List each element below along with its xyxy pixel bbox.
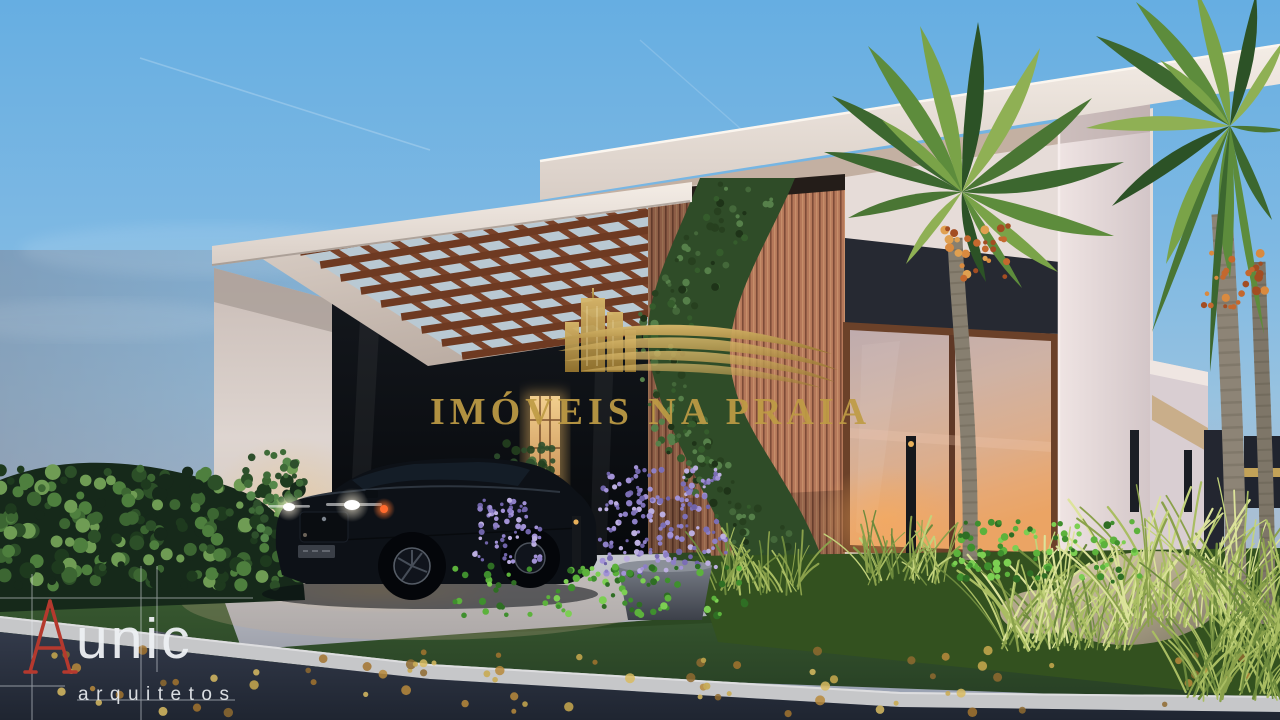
architectural-render bbox=[0, 0, 1280, 720]
badge bbox=[322, 517, 326, 521]
fog-light bbox=[303, 533, 307, 537]
drl-lamp bbox=[380, 505, 388, 513]
headlight bbox=[283, 503, 295, 511]
bollard-lamp bbox=[908, 441, 914, 447]
headlight bbox=[344, 500, 360, 510]
bollard-lamp bbox=[573, 519, 578, 524]
narrow-window bbox=[1130, 430, 1139, 512]
side-mirror bbox=[365, 490, 378, 498]
